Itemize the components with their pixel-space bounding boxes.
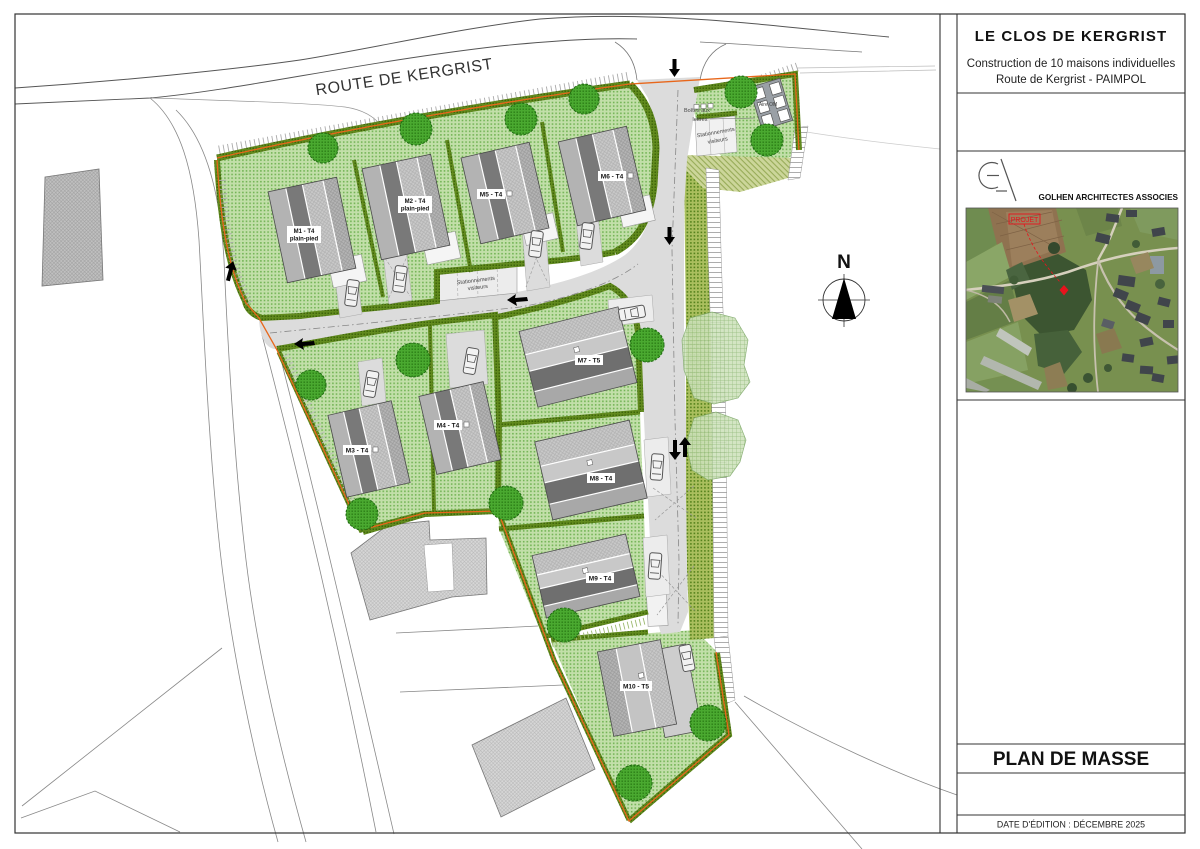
svg-text:M8 - T4: M8 - T4 bbox=[590, 476, 613, 483]
svg-text:lettres: lettres bbox=[693, 117, 708, 123]
svg-text:PROJET: PROJET bbox=[1011, 217, 1039, 224]
svg-text:M10 - T5: M10 - T5 bbox=[623, 684, 649, 691]
svg-text:DATE D'ÉDITION : DÉCEMBRE 2025: DATE D'ÉDITION : DÉCEMBRE 2025 bbox=[997, 820, 1145, 830]
svg-text:M9 - T4: M9 - T4 bbox=[589, 576, 612, 583]
svg-text:M6 - T4: M6 - T4 bbox=[601, 174, 624, 181]
svg-text:M4 - T4: M4 - T4 bbox=[437, 423, 460, 430]
svg-text:GOLHEN ARCHITECTES ASSOCIES: GOLHEN ARCHITECTES ASSOCIES bbox=[1038, 193, 1178, 202]
svg-text:M2 - T4: M2 - T4 bbox=[405, 199, 426, 205]
svg-text:M5 - T4: M5 - T4 bbox=[480, 192, 503, 199]
svg-text:plain-pied: plain-pied bbox=[401, 207, 430, 213]
svg-text:M1 - T4: M1 - T4 bbox=[294, 229, 315, 235]
svg-text:Route de Kergrist - PAIMPOL: Route de Kergrist - PAIMPOL bbox=[996, 74, 1147, 86]
svg-text:Aire OM: Aire OM bbox=[759, 102, 777, 108]
svg-text:plain-pied: plain-pied bbox=[290, 237, 319, 243]
svg-text:LE CLOS DE KERGRIST: LE CLOS DE KERGRIST bbox=[975, 28, 1168, 45]
svg-text:N: N bbox=[837, 252, 851, 273]
svg-text:M7 - T5: M7 - T5 bbox=[578, 358, 601, 365]
svg-text:Construction de 10 maisons ind: Construction de 10 maisons individuelles bbox=[967, 58, 1176, 70]
svg-text:PLAN DE MASSE: PLAN DE MASSE bbox=[993, 749, 1149, 770]
svg-text:M3 - T4: M3 - T4 bbox=[346, 448, 369, 455]
